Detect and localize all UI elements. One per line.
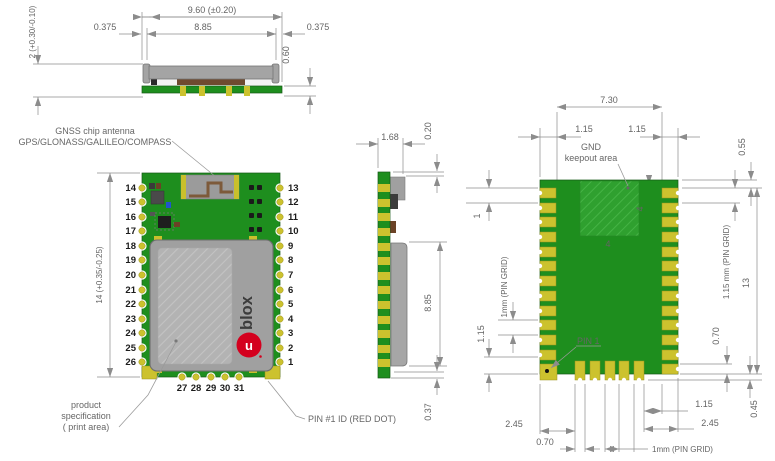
dim-left-overhang: 0.375 <box>94 22 117 32</box>
svg-text:8: 8 <box>288 255 293 266</box>
dim-left-115: 1.15 <box>575 124 593 134</box>
dim-045: 0.45 <box>749 400 759 418</box>
side-view-module <box>142 64 282 96</box>
dim-keepout-h: 4 <box>605 239 610 249</box>
dim-profile-height: 8.85 <box>423 294 433 312</box>
dim-br-115: 1.15 <box>695 399 713 409</box>
dim-left-bottom-115: 1.15 <box>476 325 486 343</box>
mechanical-drawing-page: 9.60 (±0.20) 0.375 8.85 0.375 2 (+0.30/-… <box>0 0 775 461</box>
bottom-view: GND keepout area 7.30 1.15 1.15 0.55 4 4… <box>466 95 762 454</box>
ublox-logo-text: blox <box>238 295 256 330</box>
gnd-keepout-area <box>580 181 639 236</box>
pin-grid-left-label: 1mm (PIN GRID) <box>500 256 509 317</box>
pin1-id-label: PIN #1 ID (RED DOT) <box>308 414 396 424</box>
dim-br-245: 2.45 <box>701 418 719 428</box>
svg-text:20: 20 <box>125 270 136 281</box>
antenna-label-line1: GNSS chip antenna <box>55 126 135 136</box>
svg-text:6: 6 <box>288 285 293 296</box>
pin-grid-bottom-label: 1mm (PIN GRID) <box>652 445 713 454</box>
svg-text:31: 31 <box>234 383 245 394</box>
dim-profile-top: 0.20 <box>423 122 433 140</box>
svg-text:23: 23 <box>125 314 136 325</box>
svg-text:12: 12 <box>288 197 299 208</box>
svg-text:10: 10 <box>288 226 299 237</box>
antenna-leader-line <box>172 141 216 177</box>
print-area <box>158 248 232 364</box>
antenna-label-line2: GPS/GLONASS/GALILEO/COMPASS <box>19 137 172 147</box>
svg-text:2: 2 <box>288 343 293 354</box>
svg-text:29: 29 <box>206 383 217 394</box>
pin1-id-leader-line <box>268 381 305 419</box>
svg-text:17: 17 <box>125 226 136 237</box>
dim-profile-bottom: 0.37 <box>423 403 433 421</box>
bottom-view-module <box>538 180 680 382</box>
dim-pcb-stack: 0.60 <box>281 46 291 64</box>
dim-right-115: 1.15 <box>628 124 646 134</box>
svg-text:30: 30 <box>220 383 231 394</box>
svg-text:7: 7 <box>288 270 293 281</box>
profile-module <box>378 172 407 378</box>
side-view: 9.60 (±0.20) 0.375 8.85 0.375 2 (+0.30/-… <box>28 5 329 115</box>
print-label-line1: product <box>71 400 102 410</box>
profile-view: 1.68 0.20 8.85 0.37 <box>356 122 447 421</box>
dim-profile-width: 1.68 <box>381 132 399 142</box>
ublox-logo-u: u <box>245 338 253 353</box>
pin1-marker-dot <box>545 369 549 373</box>
svg-text:14: 14 <box>125 183 136 194</box>
side-view-dimension-lines <box>33 12 316 115</box>
chip-antenna <box>181 175 239 199</box>
svg-text:19: 19 <box>125 255 136 266</box>
pin1-label: PIN 1 <box>577 336 600 346</box>
pcb-edge <box>142 86 282 93</box>
svg-text:24: 24 <box>125 328 136 339</box>
svg-text:15: 15 <box>125 197 136 208</box>
gnd-label-line1: GND <box>581 142 602 152</box>
dim-module-height: 2 (+0.30/-0.10) <box>28 5 37 58</box>
print-label-line2: specification <box>61 411 111 421</box>
svg-text:16: 16 <box>125 212 136 223</box>
dim-first-pitch: 1 <box>472 213 482 218</box>
top-view-module: blox u <box>137 173 284 382</box>
module-mechanical-drawing: 9.60 (±0.20) 0.375 8.85 0.375 2 (+0.30/-… <box>0 0 775 461</box>
svg-text:27: 27 <box>177 383 188 394</box>
dim-bl-070: 0.70 <box>536 437 554 447</box>
svg-text:3: 3 <box>288 328 293 339</box>
dim-pad-span: 7.30 <box>600 95 618 105</box>
svg-text:1: 1 <box>288 357 294 368</box>
dim-module-length: 14 (+0.35/-0.25) <box>95 246 104 303</box>
pin-grid-right-label: 1.15 mm (PIN GRID) <box>722 225 731 300</box>
svg-text:25: 25 <box>125 343 136 354</box>
dim-right-overhang: 0.375 <box>307 22 330 32</box>
dim-total-width: 9.60 (±0.20) <box>188 5 236 15</box>
top-view: blox u 14 15 16 17 18 19 20 21 22 23 24 … <box>19 126 396 432</box>
gnd-label-line2: keepout area <box>565 153 618 163</box>
svg-text:9: 9 <box>288 241 293 252</box>
dim-shield-width: 8.85 <box>194 22 212 32</box>
svg-text:26: 26 <box>125 357 136 368</box>
svg-text:13: 13 <box>288 183 299 194</box>
svg-text:11: 11 <box>288 212 299 223</box>
dim-bl-245: 2.45 <box>505 419 523 429</box>
print-label-line3: ( print area) <box>63 422 110 432</box>
svg-text:4: 4 <box>288 314 294 325</box>
svg-text:5: 5 <box>288 299 294 310</box>
dim-055: 0.55 <box>737 138 747 156</box>
svg-text:18: 18 <box>125 241 136 252</box>
svg-text:21: 21 <box>125 285 136 296</box>
shield-profile <box>391 243 407 366</box>
dim-pad-height: 0.70 <box>711 327 721 345</box>
svg-text:22: 22 <box>125 299 136 310</box>
shield-body <box>149 66 273 79</box>
svg-text:28: 28 <box>191 383 202 394</box>
dim-keepout-v: 4 <box>635 206 645 211</box>
dim-pin-span: 13 <box>741 278 751 288</box>
